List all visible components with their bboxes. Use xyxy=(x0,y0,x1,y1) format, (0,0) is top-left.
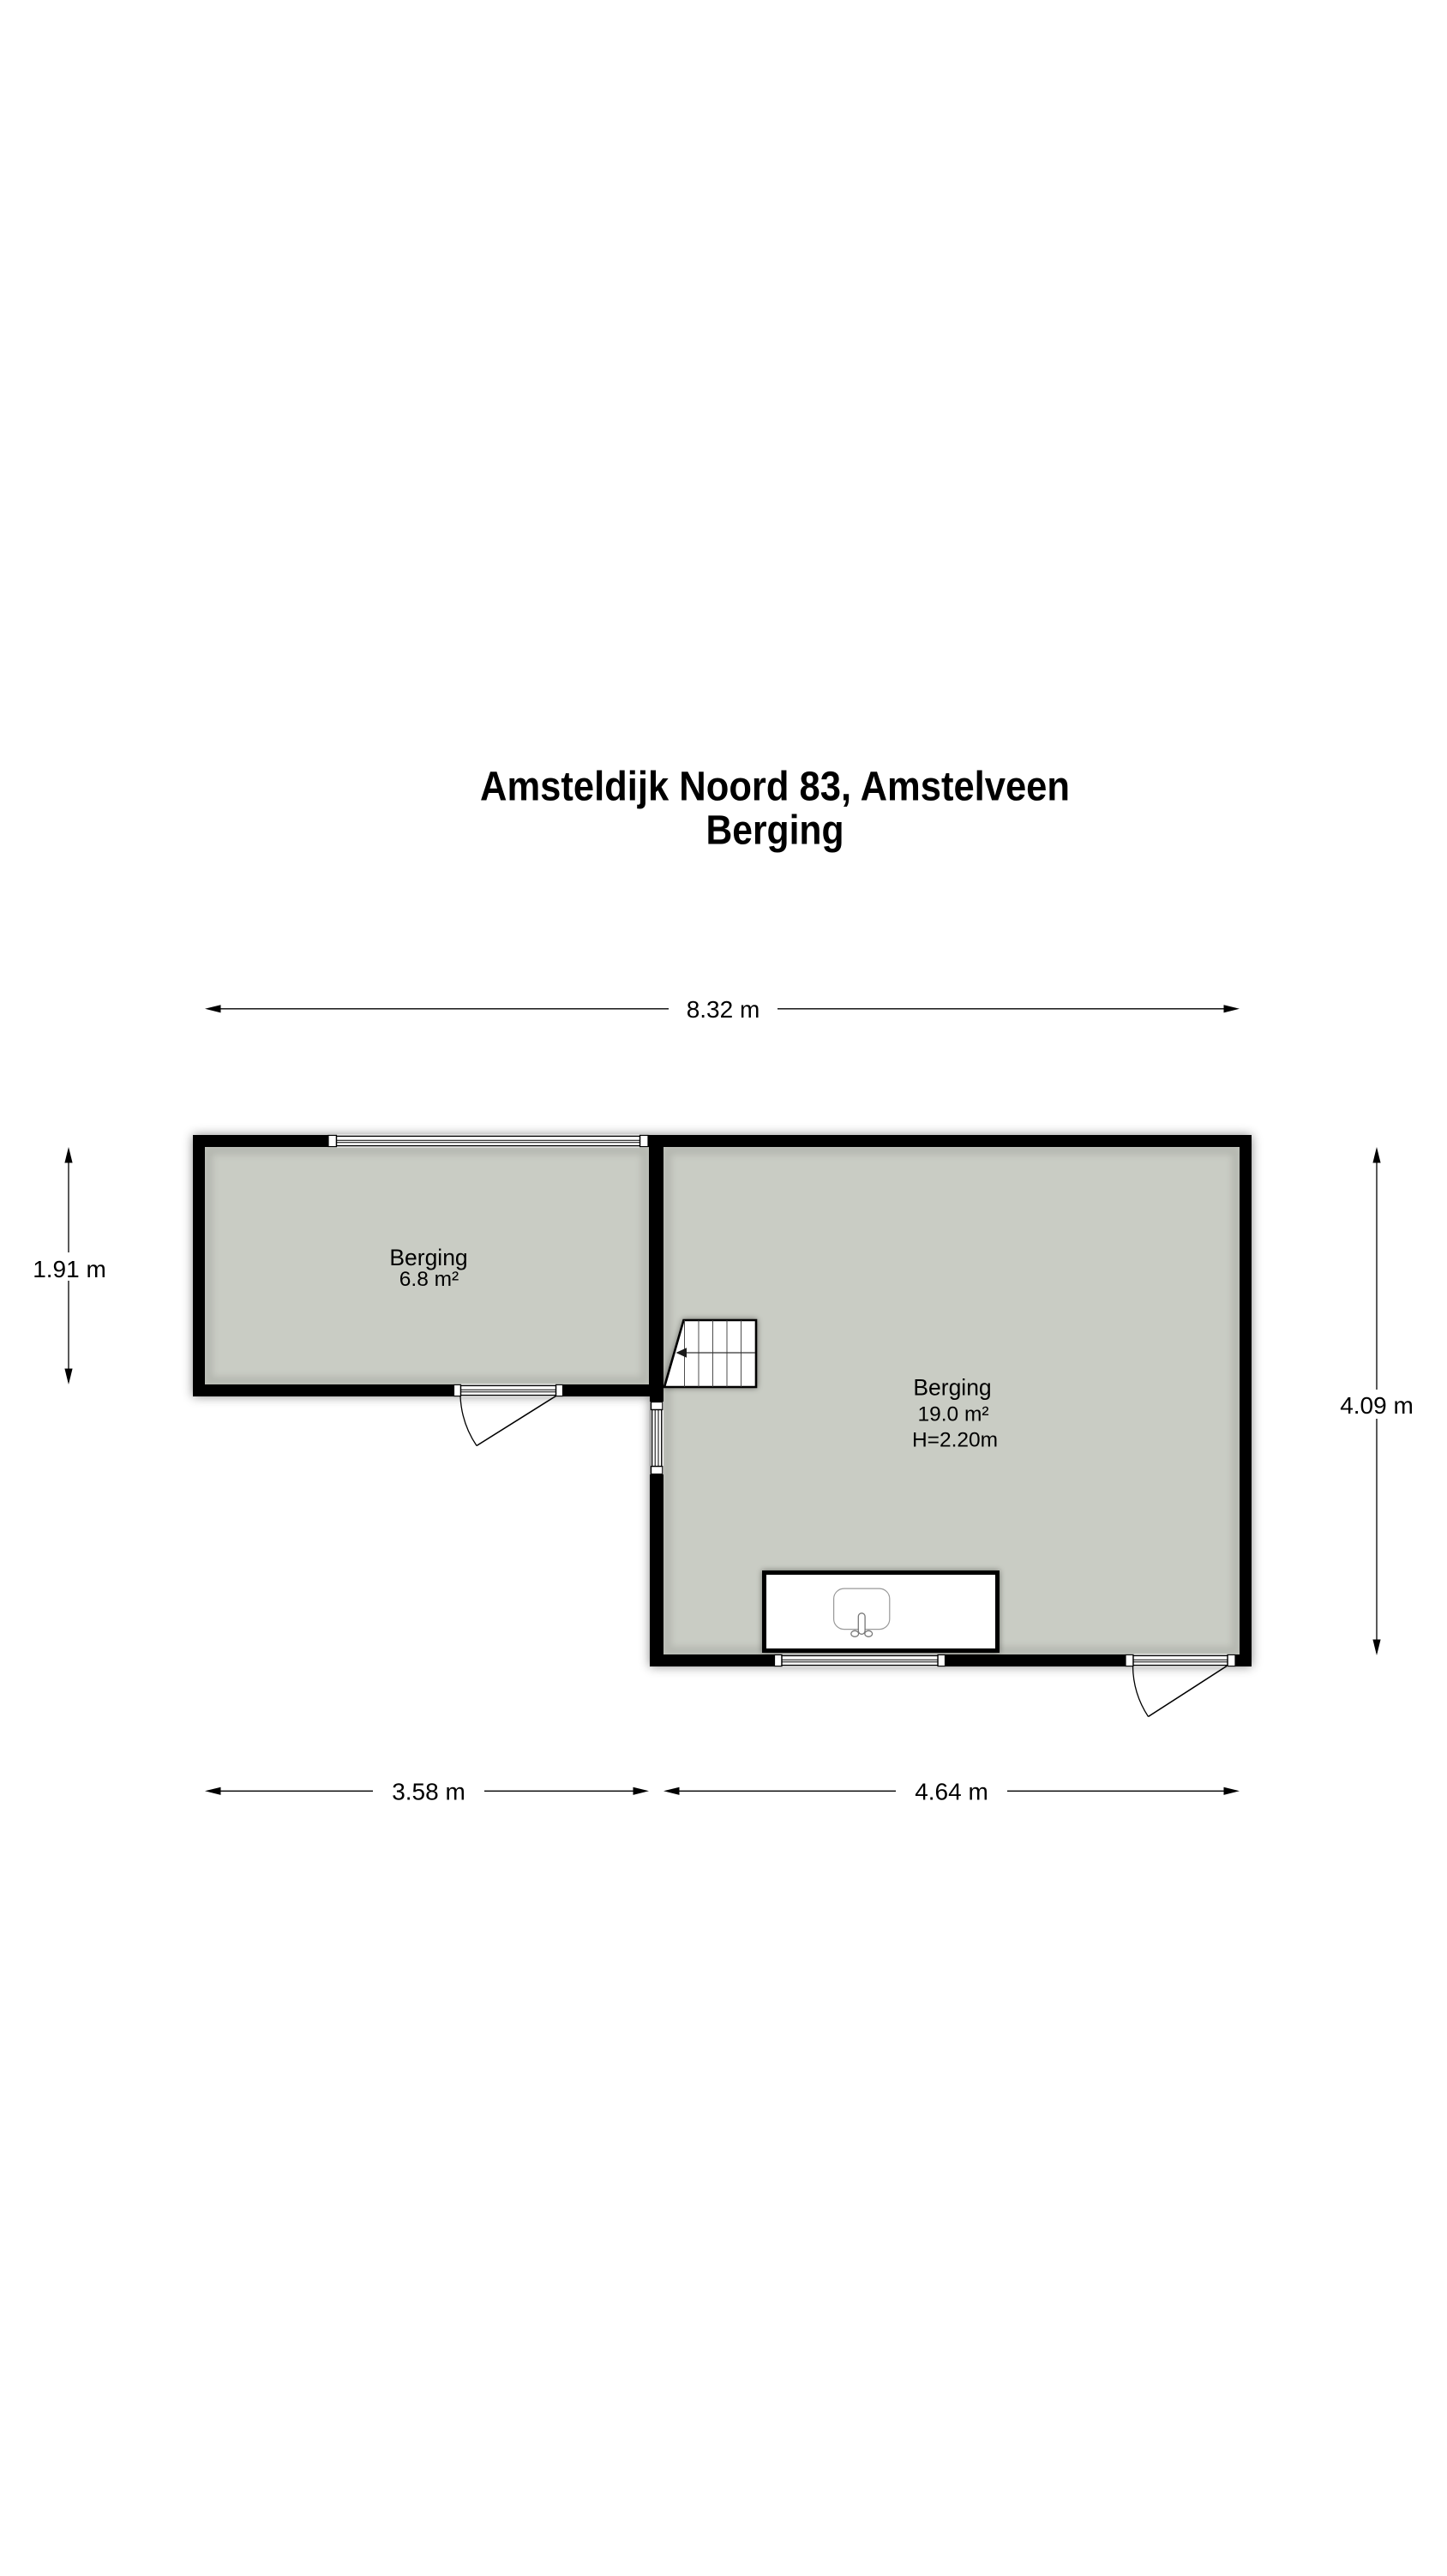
svg-text:6.8 m²: 6.8 m² xyxy=(399,1268,459,1291)
svg-text:19.0 m²: 19.0 m² xyxy=(917,1403,988,1426)
svg-text:Berging: Berging xyxy=(913,1375,991,1401)
svg-text:4.09 m: 4.09 m xyxy=(1340,1392,1414,1419)
svg-text:8.32 m: 8.32 m xyxy=(687,996,760,1023)
svg-text:Amsteldijk Noord 83, Amstelvee: Amsteldijk Noord 83, Amstelveen xyxy=(480,765,1070,810)
svg-text:H=2.20m: H=2.20m xyxy=(912,1429,998,1452)
svg-text:1.91 m: 1.91 m xyxy=(33,1256,106,1282)
svg-text:4.64 m: 4.64 m xyxy=(915,1779,988,1805)
svg-text:3.58 m: 3.58 m xyxy=(392,1779,465,1805)
svg-text:Berging: Berging xyxy=(389,1245,467,1270)
svg-text:Berging: Berging xyxy=(706,808,844,854)
